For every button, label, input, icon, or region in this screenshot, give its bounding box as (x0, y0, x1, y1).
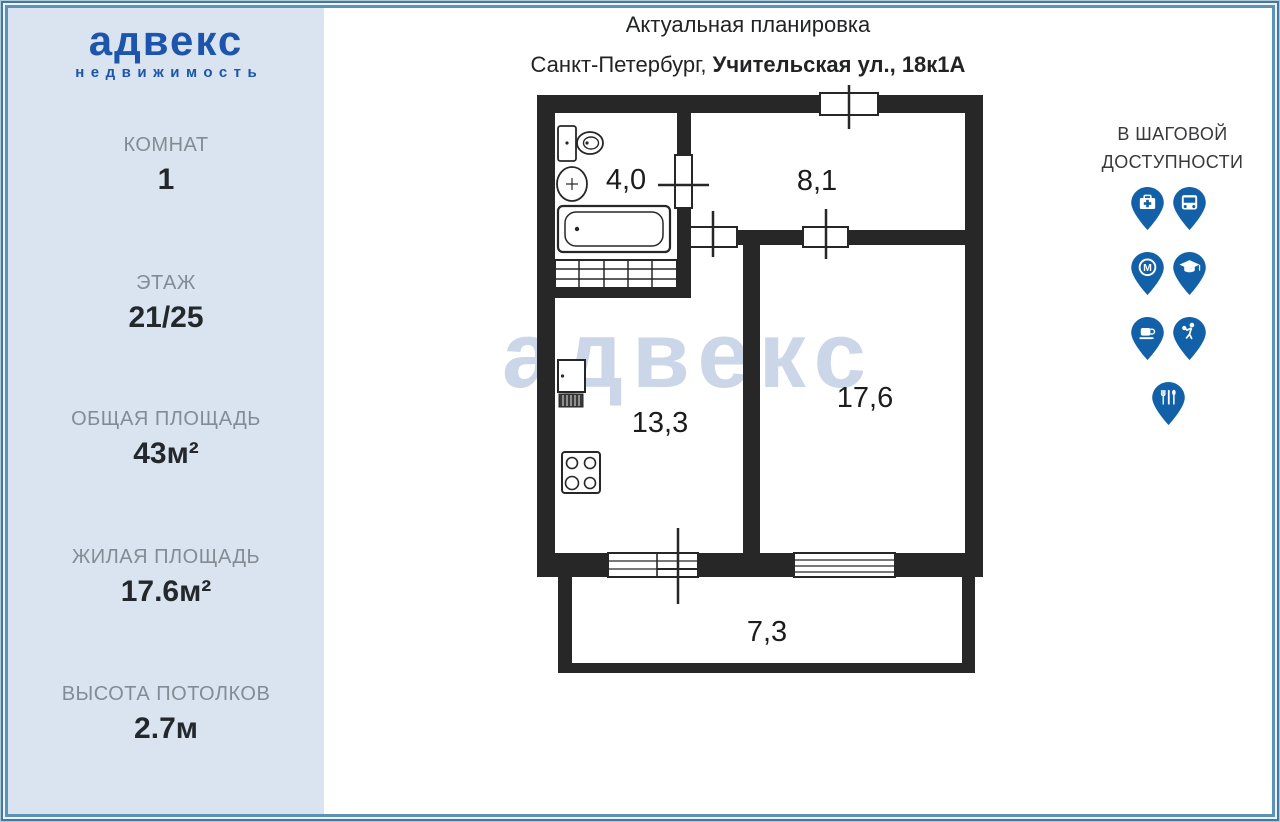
stat-rooms-value: 1 (8, 163, 324, 197)
nearby-title-line2: ДОСТУПНОСТИ (1090, 148, 1255, 176)
stat-ceiling-height: ВЫСОТА ПОТОЛКОВ 2.7м (8, 683, 324, 746)
sport-pin-icon (1172, 316, 1207, 361)
bathroom-area-label: 4,0 (606, 164, 646, 196)
cafe-pin-icon (1130, 316, 1165, 361)
walls (537, 95, 983, 673)
stat-ceiling-height-value: 2.7м (8, 712, 324, 746)
hallway-area-label: 8,1 (797, 165, 837, 197)
kitchen-window (608, 528, 701, 604)
metro-pin-icon: М (1130, 251, 1165, 296)
toilet-icon (558, 126, 603, 161)
brand-logo-title: адвекс (8, 20, 324, 62)
fridge-icon (558, 360, 585, 407)
brand-logo: адвекс недвижимость (8, 20, 324, 81)
stat-living-area-label: ЖИЛАЯ ПЛОЩАДЬ (8, 546, 324, 569)
stat-ceiling-height-label: ВЫСОТА ПОТОЛКОВ (8, 683, 324, 706)
address-city: Санкт-Петербург, (531, 52, 713, 77)
stat-rooms-label: КОМНАТ (8, 134, 324, 157)
stat-total-area-value: 43м² (8, 437, 324, 471)
stat-total-area: ОБЩАЯ ПЛОЩАДЬ 43м² (8, 408, 324, 471)
stove-icon (562, 452, 600, 493)
sink-icon (557, 167, 587, 201)
address-street: Учительская ул., 18к1А (713, 52, 966, 77)
stat-living-area: ЖИЛАЯ ПЛОЩАДЬ 17.6м² (8, 546, 324, 609)
kitchen-door (690, 211, 737, 257)
bathroom-door (658, 155, 709, 208)
kitchen-area-label: 13,3 (632, 407, 688, 439)
header: Актуальная планировка Санкт-Петербург, У… (398, 12, 1098, 78)
bathroom-shelf (555, 260, 677, 288)
restaurant-pin-icon (1151, 381, 1186, 426)
nearby-title: В ШАГОВОЙ ДОСТУПНОСТИ (1090, 120, 1255, 176)
balcony-area-label: 7,3 (747, 616, 787, 648)
entrance-opening (820, 85, 878, 129)
stat-total-area-label: ОБЩАЯ ПЛОЩАДЬ (8, 408, 324, 431)
address-line: Санкт-Петербург, Учительская ул., 18к1А (398, 52, 1098, 78)
bus-pin-icon (1172, 186, 1207, 231)
page-title: Актуальная планировка (398, 12, 1098, 38)
stat-rooms: КОМНАТ 1 (8, 134, 324, 197)
floorplan-drawing: 4,0 8,1 13,3 17,6 7,3 (525, 85, 995, 685)
nearby-title-line1: В ШАГОВОЙ (1090, 120, 1255, 148)
stat-floor-label: ЭТАЖ (8, 272, 324, 295)
svg-text:М: М (1143, 262, 1152, 274)
room-door (803, 209, 848, 259)
stat-floor: ЭТАЖ 21/25 (8, 272, 324, 335)
listing-floorplan-screen: адвекс недвижимость КОМНАТ 1 ЭТАЖ 21/25 … (0, 0, 1280, 822)
sidebar: адвекс недвижимость КОМНАТ 1 ЭТАЖ 21/25 … (8, 8, 324, 814)
room-window (794, 553, 895, 577)
brand-logo-subtitle: недвижимость (8, 64, 324, 81)
stat-living-area-value: 17.6м² (8, 575, 324, 609)
stat-floor-value: 21/25 (8, 301, 324, 335)
bathtub-icon (558, 206, 670, 252)
school-pin-icon (1172, 251, 1207, 296)
hospital-pin-icon (1130, 186, 1165, 231)
living-room-area-label: 17,6 (837, 382, 893, 414)
